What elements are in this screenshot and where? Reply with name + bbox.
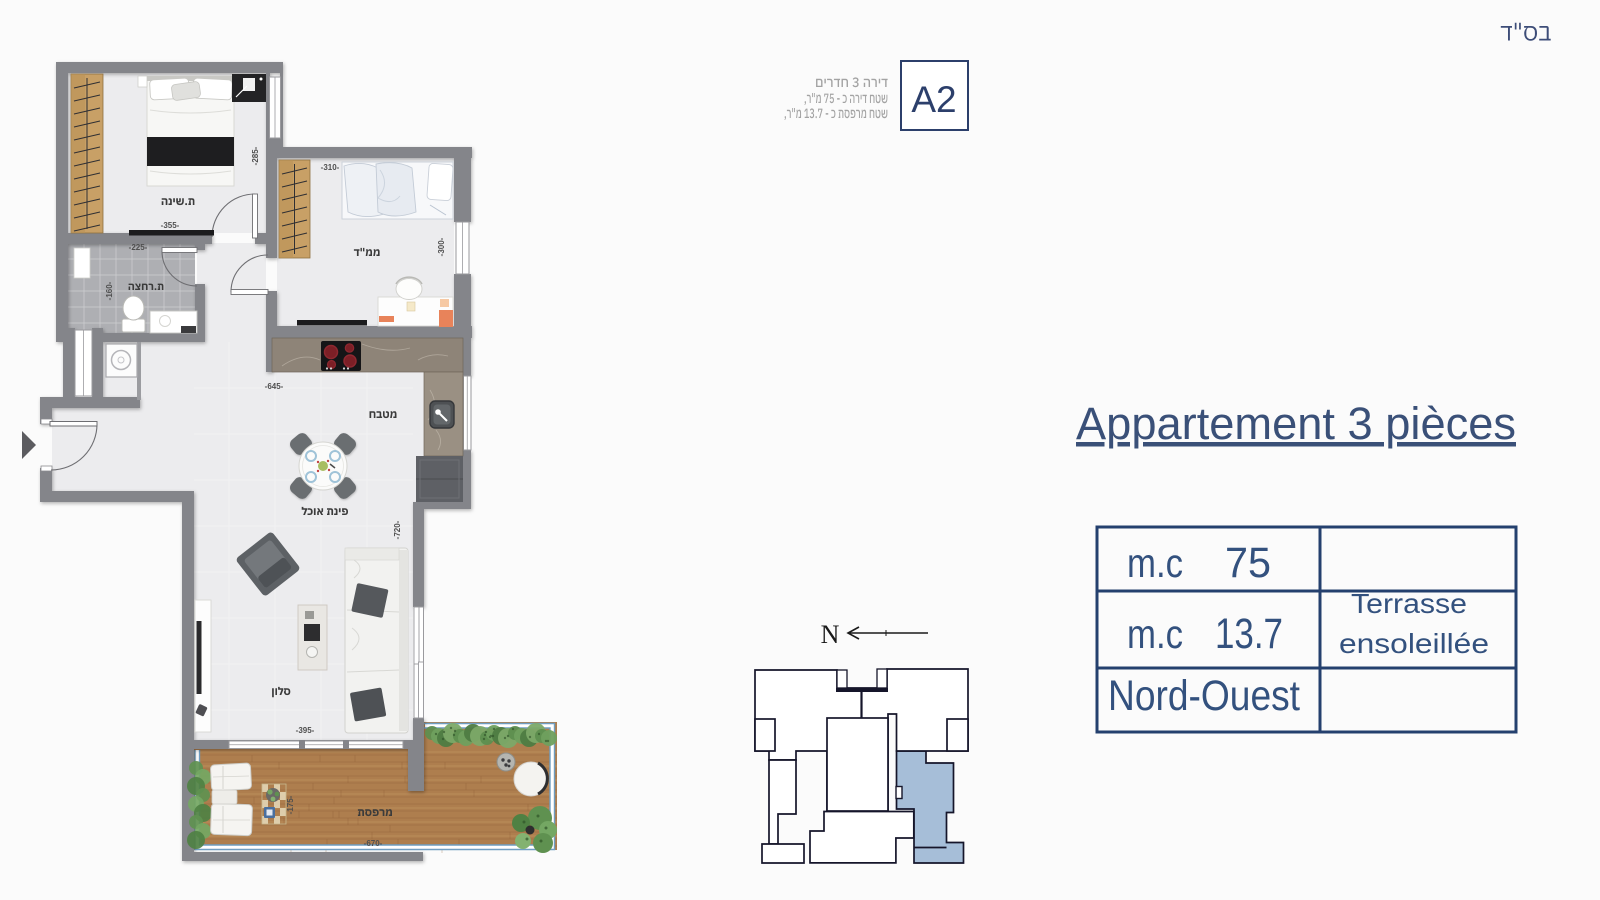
svg-text:13.7: 13.7 — [1215, 610, 1283, 658]
svg-text:-225-: -225- — [129, 243, 148, 252]
svg-text:75: 75 — [1225, 539, 1271, 587]
svg-text:-355-: -355- — [161, 221, 180, 230]
svg-text:Appartement 3 pièces: Appartement 3 pièces — [1076, 398, 1516, 449]
svg-text:-670-: -670- — [364, 839, 383, 848]
svg-text:Terrasse: Terrasse — [1351, 588, 1467, 619]
svg-text:-645-: -645- — [265, 382, 284, 391]
svg-text:-175-: -175- — [286, 795, 295, 814]
svg-text:m.c: m.c — [1127, 611, 1183, 657]
svg-text:ensoleillée: ensoleillée — [1339, 628, 1489, 659]
svg-text:A2: A2 — [911, 79, 956, 120]
svg-text:-160-: -160- — [105, 281, 114, 300]
svg-text:-395-: -395- — [296, 726, 315, 735]
svg-text:N: N — [821, 620, 840, 649]
svg-text:Nord-Ouest: Nord-Ouest — [1108, 672, 1300, 720]
svg-text:-310-: -310- — [321, 163, 340, 172]
svg-text:-285-: -285- — [251, 146, 260, 165]
svg-text:-300-: -300- — [437, 237, 446, 256]
svg-text:-720-: -720- — [393, 520, 402, 539]
svg-text:m.c: m.c — [1127, 540, 1183, 586]
